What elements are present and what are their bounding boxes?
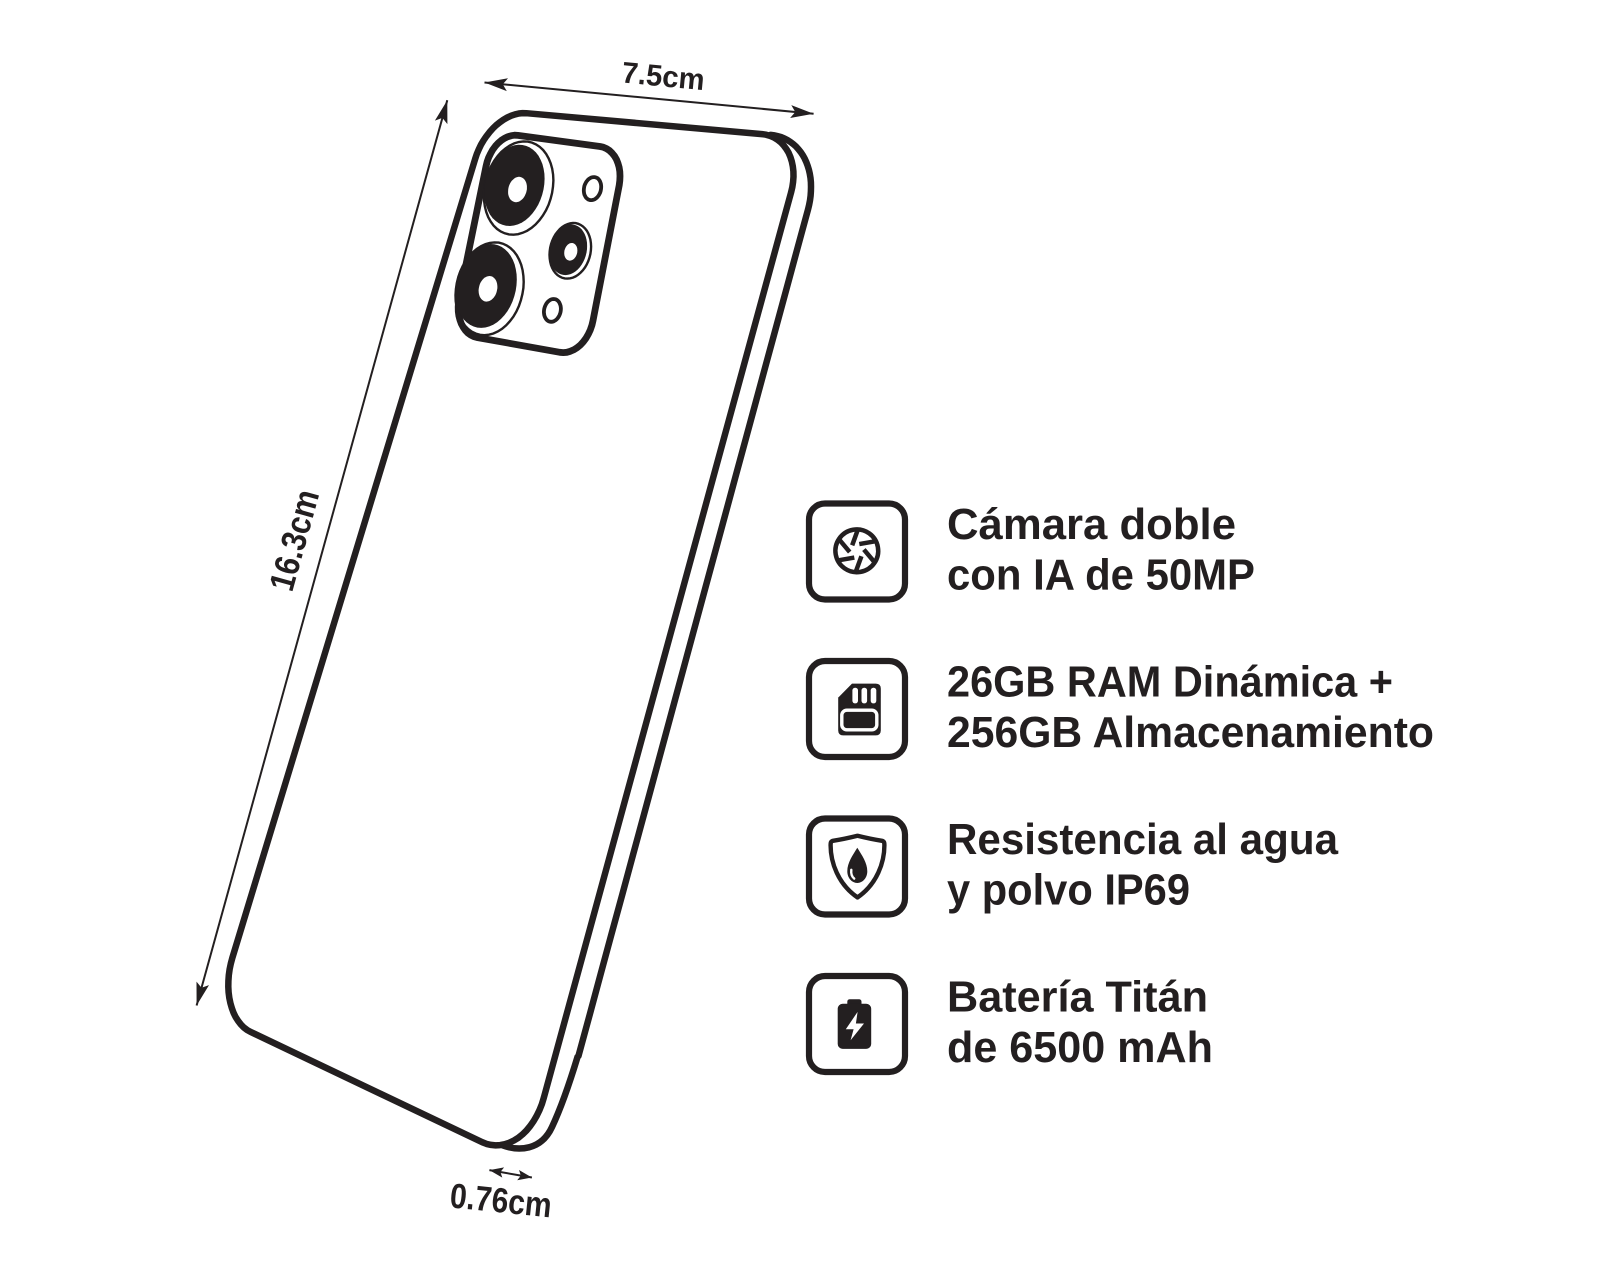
svg-text:Batería Titán: Batería Titán (947, 973, 1208, 1022)
svg-text:de 6500 mAh: de 6500 mAh (947, 1023, 1213, 1072)
svg-text:Cámara doble: Cámara doble (947, 500, 1236, 549)
svg-text:26GB RAM Dinámica +: 26GB RAM Dinámica + (947, 658, 1393, 707)
svg-text:Resistencia al agua: Resistencia al agua (947, 815, 1339, 864)
svg-text:256GB Almacenamiento: 256GB Almacenamiento (947, 708, 1434, 757)
svg-text:16.3cm: 16.3cm (262, 485, 327, 595)
svg-text:con IA de 50MP: con IA de 50MP (947, 551, 1255, 600)
svg-text:0.76cm: 0.76cm (448, 1176, 553, 1225)
svg-text:y polvo IP69: y polvo IP69 (947, 866, 1190, 915)
svg-text:7.5cm: 7.5cm (620, 57, 706, 98)
